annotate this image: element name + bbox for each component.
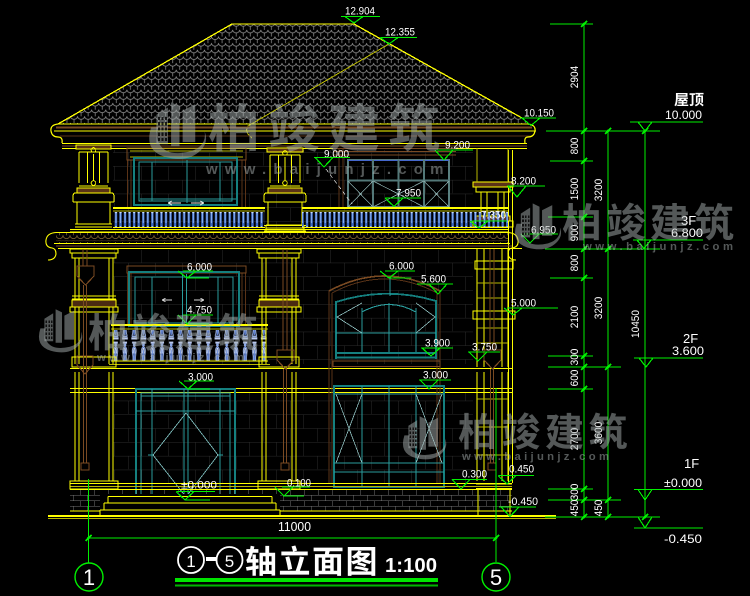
svg-text:7.350: 7.350 [481, 210, 506, 222]
svg-text:±0.000: ±0.000 [181, 480, 217, 492]
svg-text:www.baijunjz.com: www.baijunjz.com [461, 451, 612, 463]
svg-text:1: 1 [83, 565, 95, 590]
svg-text:12.355: 12.355 [385, 27, 415, 39]
svg-text:0.450: 0.450 [509, 464, 534, 476]
svg-text:3200: 3200 [593, 297, 605, 319]
svg-text:10.000: 10.000 [665, 108, 702, 122]
svg-text:2100: 2100 [569, 306, 581, 328]
svg-text:3.000: 3.000 [188, 372, 213, 384]
svg-text:300: 300 [569, 349, 581, 366]
svg-text:3.600: 3.600 [672, 344, 704, 358]
svg-text:-0.450: -0.450 [508, 496, 538, 508]
svg-text:1:100: 1:100 [385, 555, 437, 577]
svg-text:1F: 1F [684, 456, 699, 471]
svg-text:2904: 2904 [569, 66, 581, 88]
svg-text:3200: 3200 [593, 179, 605, 201]
svg-text:450: 450 [593, 500, 605, 517]
svg-text:6.000: 6.000 [187, 262, 212, 274]
svg-text:1: 1 [186, 552, 195, 571]
svg-text:10450: 10450 [630, 310, 642, 338]
svg-text:±0.000: ±0.000 [664, 476, 702, 490]
svg-text:1500: 1500 [569, 178, 581, 200]
svg-text:9.000: 9.000 [324, 149, 349, 161]
svg-text:5: 5 [490, 565, 502, 590]
svg-text:-0.450: -0.450 [664, 532, 702, 546]
svg-text:12.904: 12.904 [345, 6, 375, 18]
svg-text:www.baijunjz.com: www.baijunjz.com [96, 352, 247, 364]
svg-text:5: 5 [225, 552, 234, 571]
svg-text:800: 800 [569, 255, 581, 272]
svg-text:450: 450 [569, 500, 581, 517]
svg-text:300: 300 [569, 484, 581, 501]
svg-text:www.baijunjz.com: www.baijunjz.com [205, 161, 451, 178]
svg-text:www.baijunjz.com: www.baijunjz.com [582, 241, 737, 253]
svg-text:11000: 11000 [278, 520, 311, 534]
svg-text:800: 800 [569, 138, 581, 155]
svg-text:0.300: 0.300 [462, 469, 487, 481]
svg-text:0.100: 0.100 [287, 478, 311, 490]
svg-text:600: 600 [569, 370, 581, 387]
